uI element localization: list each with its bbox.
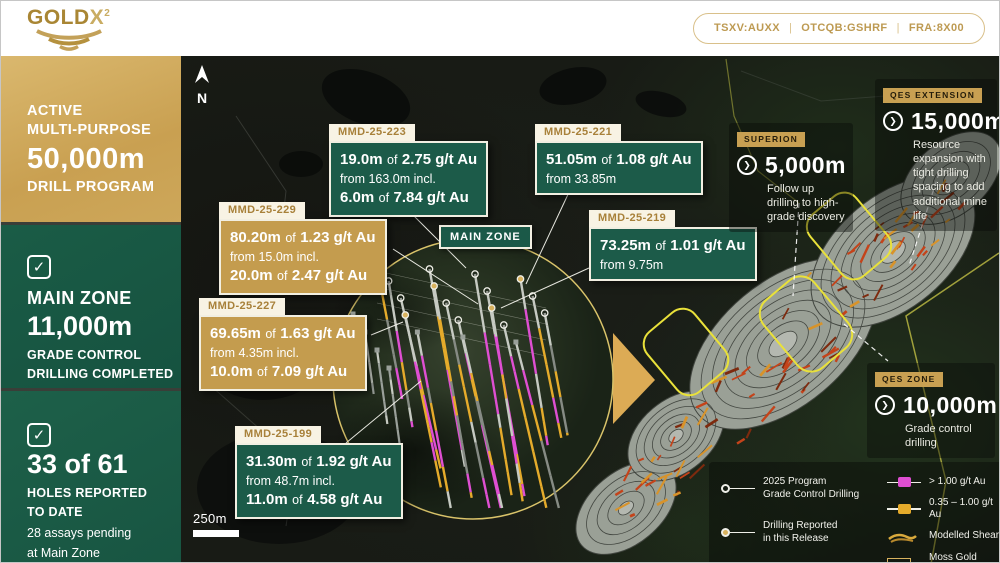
callout-hole-id: MMD-25-199 [235, 426, 321, 443]
boundary-rect-icon [887, 558, 921, 563]
logo-wordmark: GOLDX2 [27, 7, 110, 28]
callout-hole-id: MMD-25-219 [589, 210, 675, 227]
interval-depth: from 48.7m incl. [246, 473, 392, 490]
legend-label: in this Release [763, 533, 837, 546]
scale-bar: 250m [193, 511, 239, 537]
shear-squiggle-icon [887, 530, 921, 544]
check-glyph: ✓ [33, 258, 46, 276]
target-desc: Follow up drilling to high-grade discove… [767, 182, 845, 225]
callout-hole-id: MMD-25-221 [535, 124, 621, 141]
of-word: of [601, 153, 611, 167]
callout-hole-id: MMD-25-229 [219, 202, 305, 219]
interval-grade: 2.47 g/t Au [292, 267, 367, 284]
interval-depth: from 15.0m incl. [230, 249, 376, 266]
program-line3: DRILL PROGRAM [27, 178, 181, 197]
map-legend: 2025 ProgramGrade Control Drilling Drill… [709, 462, 1000, 563]
logo-sup: 2 [104, 8, 110, 19]
header: GOLDX2 TSXV:AUXX|OTCQB:GSHRF|FRA:8X00 [1, 1, 999, 56]
of-word: of [655, 239, 665, 253]
callout-mmd-25-229: MMD-25-229 80.20m of 1.23 g/t Au from 15… [219, 219, 387, 295]
interval-depth: from 163.0m incl. [340, 171, 477, 188]
program-line1: ACTIVE [27, 102, 181, 121]
target-superion: SUPERION ❯ 5,000m Follow up drilling to … [729, 123, 853, 232]
callout-body: 80.20m of 1.23 g/t Au from 15.0m incl. 2… [219, 219, 387, 295]
interval-grade: 4.58 g/t Au [307, 491, 382, 508]
interval-length: 10.0m [210, 363, 253, 380]
legend-item-project-boundary: Moss Gold Project [887, 552, 1000, 563]
interval-grade: 1.92 g/t Au [316, 453, 391, 470]
north-arrow-icon [192, 64, 212, 84]
of-word: of [285, 231, 295, 245]
of-word: of [292, 493, 302, 507]
target-tag: QES EXTENSION [883, 88, 982, 103]
legend-label: 2025 Program [763, 476, 859, 489]
target-meters: 15,000m [911, 108, 1000, 135]
ticker-separator: | [897, 22, 900, 34]
panel-holes-reported: ✓ 33 of 61 HOLES REPORTED TO DATE 28 ass… [1, 391, 181, 562]
of-word: of [301, 455, 311, 469]
interval-length: 73.25m [600, 237, 651, 254]
callout-body: 51.05m of 1.08 g/t Au from 33.85m [535, 141, 703, 195]
legend-label: > 1.00 g/t Au [929, 476, 985, 489]
callout-hole-id: MMD-25-227 [199, 298, 285, 315]
interval-length: 11.0m [246, 491, 288, 508]
north-arrow: N [191, 64, 213, 106]
chevron-glyph: ❯ [743, 160, 751, 171]
of-word: of [265, 327, 275, 341]
holes-note1: 28 assays pending [27, 524, 181, 542]
of-word: of [387, 153, 397, 167]
legend-label: Grade Control Drilling [763, 489, 859, 502]
panel-drill-program: ACTIVE MULTI-PURPOSE 50,000m DRILL PROGR… [1, 56, 181, 222]
program-meters: 50,000m [27, 143, 181, 176]
legend-item-grade-control: 2025 ProgramGrade Control Drilling [721, 476, 873, 501]
legend-label: 0.35 – 1.00 g/t Au [929, 497, 1000, 522]
ticker-fra: FRA:8X00 [909, 22, 964, 34]
target-tag: QES ZONE [875, 372, 943, 387]
check-glyph: ✓ [33, 426, 46, 444]
target-qes-extension: QES EXTENSION ❯ 15,000m Resource expansi… [875, 79, 997, 231]
check-icon: ✓ [27, 423, 51, 447]
interval-grade: 7.09 g/t Au [272, 363, 347, 380]
company-logo: GOLDX2 [27, 7, 110, 58]
holes-line2: TO DATE [27, 503, 181, 522]
chevron-glyph: ❯ [881, 400, 889, 411]
callout-mmd-25-227: MMD-25-227 69.65m of 1.63 g/t Au from 4.… [199, 315, 367, 391]
callout-mmd-25-223: MMD-25-223 19.0m of 2.75 g/t Au from 163… [329, 141, 488, 217]
open-circle-marker-icon [721, 484, 755, 493]
panel-main-zone: ✓ MAIN ZONE 11,000m GRADE CONTROL DRILLI… [1, 225, 181, 388]
sidebar: ACTIVE MULTI-PURPOSE 50,000m DRILL PROGR… [1, 56, 181, 562]
interval-grade: 7.84 g/t Au [394, 189, 469, 206]
interval-depth: from 33.85m [546, 171, 692, 188]
zoom-wedge [613, 333, 655, 424]
target-meters: 10,000m [903, 392, 997, 419]
interval-length: 51.05m [546, 151, 597, 168]
legend-item-high-grade: > 1.00 g/t Au [887, 476, 1000, 489]
interval-length: 80.20m [230, 229, 281, 246]
interval-depth: from 9.75m [600, 257, 746, 274]
callout-body: 69.65m of 1.63 g/t Au from 4.35m incl. 1… [199, 315, 367, 391]
slide: GOLDX2 TSXV:AUXX|OTCQB:GSHRF|FRA:8X00 AC… [0, 0, 1000, 563]
callout-mmd-25-219: MMD-25-219 73.25m of 1.01 g/t Au from 9.… [589, 227, 757, 281]
scale-label: 250m [193, 511, 239, 526]
target-tag: SUPERION [737, 132, 805, 147]
callout-body: 73.25m of 1.01 g/t Au from 9.75m [589, 227, 757, 281]
interval-length: 19.0m [340, 151, 383, 168]
interval-length: 6.0m [340, 189, 374, 206]
legend-label: Drilling Reported [763, 520, 837, 533]
callout-mmd-25-221: MMD-25-221 51.05m of 1.08 g/t Au from 33… [535, 141, 703, 195]
interval-grade: 1.23 g/t Au [300, 229, 375, 246]
callout-hole-id: MMD-25-223 [329, 124, 415, 141]
circle-arrow-icon: ❯ [737, 155, 757, 175]
magenta-interval-icon [887, 477, 921, 487]
check-icon: ✓ [27, 255, 51, 279]
interval-length: 69.65m [210, 325, 261, 342]
interval-length: 20.0m [230, 267, 273, 284]
target-qes-zone: QES ZONE ❯ 10,000m Grade control drillin… [867, 363, 995, 458]
main-zone-meters: 11,000m [27, 311, 181, 342]
target-desc: Grade control drilling [905, 422, 987, 451]
main-zone-title: MAIN ZONE [27, 288, 181, 309]
holes-line1: HOLES REPORTED [27, 484, 181, 503]
legend-item-modelled-shears: Modelled Shears [887, 530, 1000, 544]
legend-item-reported: Drilling Reportedin this Release [721, 520, 873, 545]
interval-grade: 1.01 g/t Au [670, 237, 745, 254]
interval-grade: 1.63 g/t Au [280, 325, 355, 342]
logo-word: GOLD [27, 6, 90, 29]
interval-grade: 2.75 g/t Au [402, 151, 477, 168]
chevron-glyph: ❯ [889, 116, 897, 127]
legend-item-low-grade: 0.35 – 1.00 g/t Au [887, 497, 1000, 522]
holes-note2: at Main Zone [27, 544, 181, 562]
of-word: of [257, 365, 267, 379]
main-zone-line2: DRILLING COMPLETED [27, 365, 181, 384]
main-zone-line1: GRADE CONTROL [27, 346, 181, 365]
interval-grade: 1.08 g/t Au [616, 151, 691, 168]
of-word: of [277, 269, 287, 283]
legend-label: Moss Gold Project [929, 552, 1000, 563]
circle-arrow-icon: ❯ [875, 395, 895, 415]
callout-mmd-25-199: MMD-25-199 31.30m of 1.92 g/t Au from 48… [235, 443, 403, 519]
stock-tickers: TSXV:AUXX|OTCQB:GSHRF|FRA:8X00 [693, 13, 985, 44]
north-label: N [191, 90, 213, 106]
circle-arrow-icon: ❯ [883, 111, 903, 131]
drill-program-map: N 250m MAIN ZONE MMD-25-223 19.0m of 2.7… [181, 56, 1000, 563]
target-desc: Resource expansion with tight drilling s… [913, 138, 989, 224]
vortex-logo-icon [33, 29, 105, 53]
main-zone-tag: MAIN ZONE [439, 225, 532, 249]
callout-body: 19.0m of 2.75 g/t Au from 163.0m incl. 6… [329, 141, 488, 217]
of-word: of [379, 191, 389, 205]
gold-circle-marker-icon [721, 528, 755, 537]
holes-count: 33 of 61 [27, 449, 181, 480]
program-line2: MULTI-PURPOSE [27, 121, 181, 140]
target-meters: 5,000m [765, 152, 846, 179]
ticker-otcqb: OTCQB:GSHRF [801, 22, 887, 34]
gold-interval-icon [887, 504, 921, 514]
interval-length: 31.30m [246, 453, 297, 470]
interval-depth: from 4.35m incl. [210, 345, 356, 362]
ticker-separator: | [789, 22, 792, 34]
ticker-tsxv: TSXV:AUXX [714, 22, 780, 34]
legend-column-drilling: 2025 ProgramGrade Control Drilling Drill… [721, 472, 873, 563]
legend-column-grades: > 1.00 g/t Au 0.35 – 1.00 g/t Au Modelle… [887, 472, 1000, 563]
callout-body: 31.30m of 1.92 g/t Au from 48.7m incl. 1… [235, 443, 403, 519]
scale-bar-rule [193, 530, 239, 537]
logo-x: X [90, 6, 105, 29]
legend-label: Modelled Shears [929, 530, 1000, 543]
